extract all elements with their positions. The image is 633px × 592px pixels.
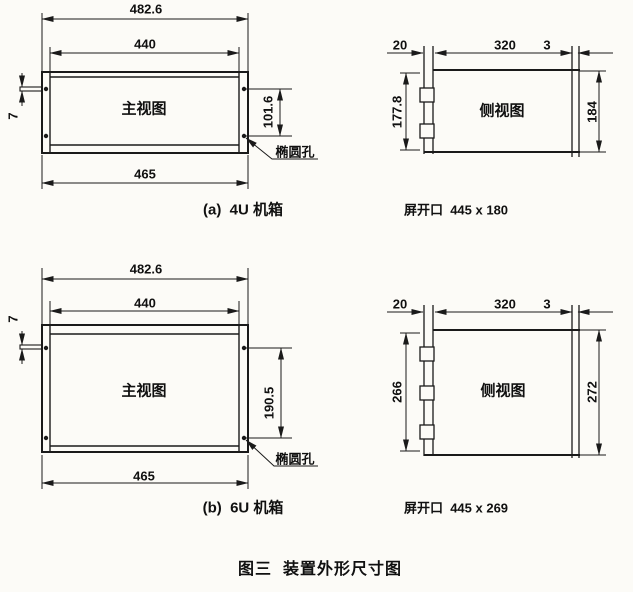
dim-4u-panel-width: 440 — [134, 38, 156, 51]
front-view-6u-linework — [20, 268, 318, 489]
side-view-6u-title: 侧视图 — [480, 384, 525, 399]
dim-6u-body-height: 266 — [391, 381, 404, 403]
dim-6u-overall-width: 482.6 — [130, 263, 163, 276]
dim-4u-body-width: 465 — [134, 168, 156, 181]
panel-cutout-6u-label: 屏开口 445 x 269 — [404, 502, 508, 515]
engineering-drawing-page: 482.6 440 主视图 7 101.6 465 椭圆孔 (a) 4U 机箱 … — [0, 0, 633, 592]
dim-4u-body-depth: 320 — [494, 39, 516, 52]
dim-4u-panel-height: 184 — [586, 101, 599, 123]
side-view-4u-linework — [387, 46, 613, 157]
dim-4u-rear-gap: 3 — [543, 39, 550, 52]
dim-6u-panel-height: 272 — [586, 381, 599, 403]
drawing-canvas — [0, 0, 633, 592]
dim-6u-body-width: 465 — [133, 470, 155, 483]
oval-hole-callout-6u: 椭圆孔 — [275, 453, 314, 466]
side-view-6u-linework — [387, 305, 613, 458]
dim-6u-rear-gap: 3 — [543, 298, 550, 311]
front-view-6u-label: (b) 6U 机箱 — [203, 501, 284, 516]
panel-notches-6u — [420, 347, 434, 439]
front-view-4u-label: (a) 4U 机箱 — [203, 203, 283, 218]
front-view-6u-title: 主视图 — [121, 384, 166, 399]
panel-cutout-4u-label: 屏开口 445 x 180 — [404, 204, 508, 217]
dim-6u-panel-width: 440 — [134, 297, 156, 310]
figure-caption: 图三 装置外形尺寸图 — [238, 562, 402, 578]
handle-pin — [20, 345, 42, 349]
dim-6u-hole-spacing: 190.5 — [263, 387, 276, 420]
side-view-4u-title: 侧视图 — [479, 104, 524, 119]
dim-4u-pin-width: 7 — [7, 112, 20, 119]
dim-6u-body-depth: 320 — [494, 298, 516, 311]
dim-4u-body-height: 177.8 — [391, 96, 404, 129]
dim-4u-overall-width: 482.6 — [130, 3, 163, 16]
dim-4u-hole-spacing: 101.6 — [262, 96, 275, 129]
handle-pin — [20, 87, 42, 91]
oval-hole-callout-4u: 椭圆孔 — [275, 146, 314, 159]
dim-4u-front-depth: 20 — [393, 39, 407, 52]
dim-6u-pin-width: 7 — [7, 315, 20, 322]
dim-6u-front-depth: 20 — [393, 298, 407, 311]
front-view-4u-title: 主视图 — [121, 102, 166, 117]
panel-notches-4u — [420, 88, 434, 138]
